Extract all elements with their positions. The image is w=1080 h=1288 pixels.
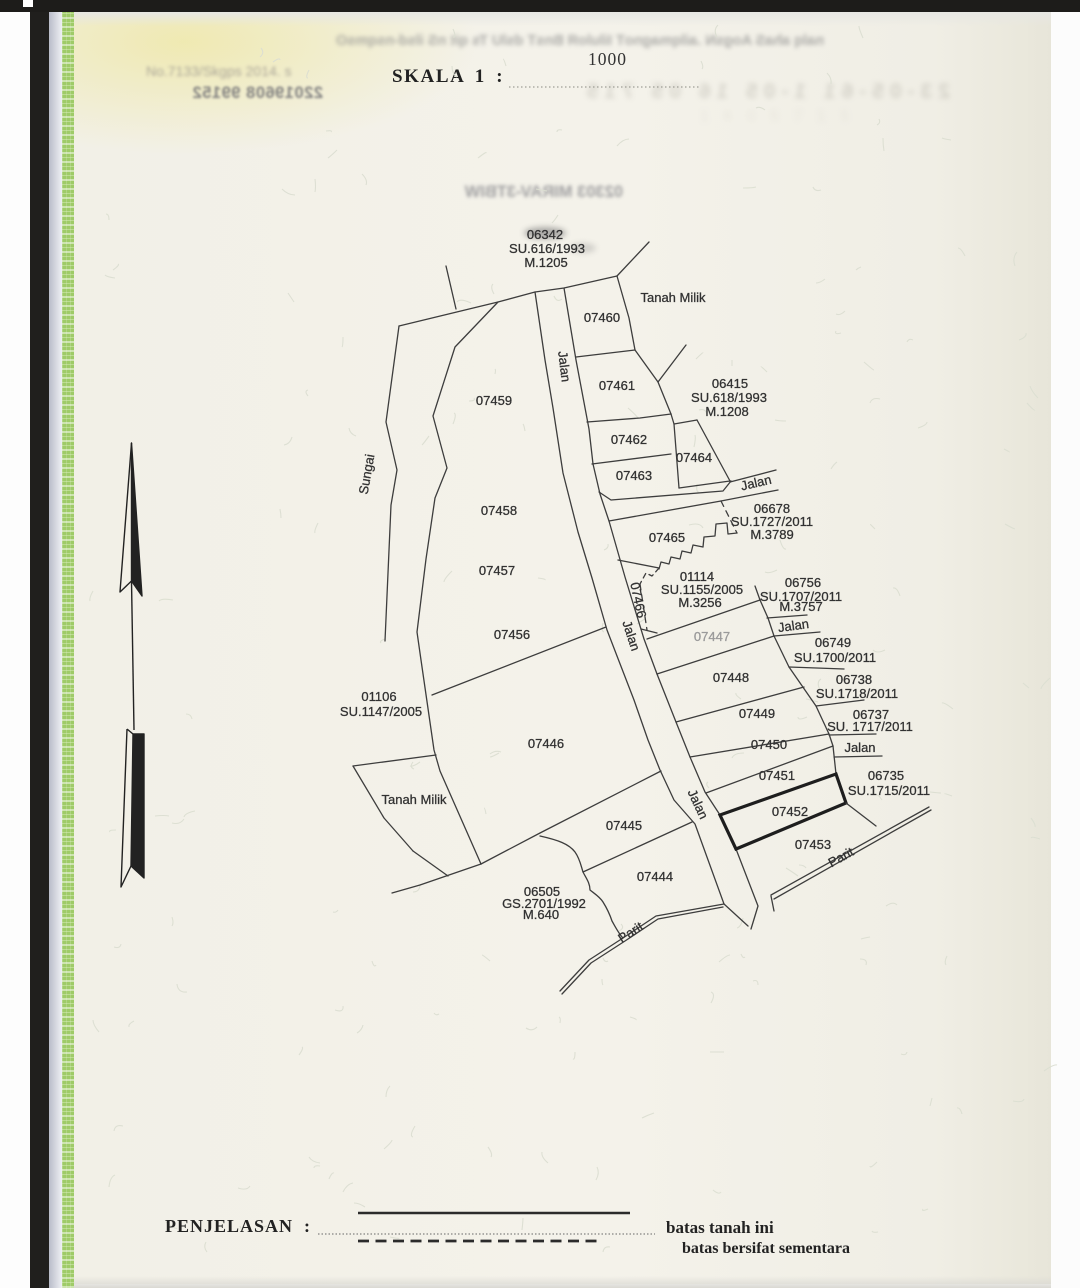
svg-text:07456: 07456 bbox=[494, 627, 530, 642]
svg-text:Tanah Milik: Tanah Milik bbox=[381, 792, 447, 807]
svg-text:Sungai: Sungai bbox=[356, 453, 378, 496]
svg-text:07452: 07452 bbox=[772, 804, 808, 819]
svg-text:SU.616/1993: SU.616/1993 bbox=[509, 241, 585, 256]
svg-text:M.640: M.640 bbox=[523, 907, 559, 922]
svg-text:06342: 06342 bbox=[527, 227, 563, 242]
svg-text:07463: 07463 bbox=[616, 468, 652, 483]
svg-text:07448: 07448 bbox=[713, 670, 749, 685]
svg-text:Tanah Milik: Tanah Milik bbox=[640, 290, 706, 305]
svg-text:07458: 07458 bbox=[481, 503, 517, 518]
svg-text:M.3789: M.3789 bbox=[750, 527, 793, 542]
svg-text:07449: 07449 bbox=[739, 706, 775, 721]
svg-text:SU.1718/2011: SU.1718/2011 bbox=[816, 686, 898, 701]
svg-text:07466: 07466 bbox=[627, 581, 649, 619]
svg-text:07451: 07451 bbox=[759, 768, 795, 783]
svg-text:07464: 07464 bbox=[676, 450, 712, 465]
svg-text:06735: 06735 bbox=[868, 768, 904, 783]
svg-text:07460: 07460 bbox=[584, 310, 620, 325]
svg-text:M.1205: M.1205 bbox=[524, 255, 567, 270]
svg-text:07453: 07453 bbox=[795, 837, 831, 852]
svg-text:07450: 07450 bbox=[751, 737, 787, 752]
svg-text:07462: 07462 bbox=[611, 432, 647, 447]
svg-text:07457: 07457 bbox=[479, 563, 515, 578]
svg-text:06749: 06749 bbox=[815, 635, 851, 650]
svg-text:SU.1147/2005: SU.1147/2005 bbox=[340, 704, 422, 719]
svg-text:M.3256: M.3256 bbox=[678, 595, 721, 610]
svg-text:07461: 07461 bbox=[599, 378, 635, 393]
svg-text:07446: 07446 bbox=[528, 736, 564, 751]
svg-text:Jalan: Jalan bbox=[844, 740, 875, 755]
svg-text:07465: 07465 bbox=[649, 530, 685, 545]
svg-text:Jalan: Jalan bbox=[777, 616, 810, 635]
svg-text:M.3757: M.3757 bbox=[779, 599, 822, 614]
svg-text:SU.1700/2011: SU.1700/2011 bbox=[794, 650, 876, 665]
svg-text:Jalan: Jalan bbox=[739, 472, 773, 494]
svg-text:M.1208: M.1208 bbox=[705, 404, 748, 419]
svg-text:07444: 07444 bbox=[637, 869, 673, 884]
svg-text:Jalan: Jalan bbox=[555, 350, 574, 383]
svg-text:07459: 07459 bbox=[476, 393, 512, 408]
svg-text:06738: 06738 bbox=[836, 672, 872, 687]
svg-text:07445: 07445 bbox=[606, 818, 642, 833]
svg-text:Parit: Parit bbox=[615, 918, 646, 945]
svg-text:SU.618/1993: SU.618/1993 bbox=[691, 390, 767, 405]
svg-text:06756: 06756 bbox=[785, 575, 821, 590]
svg-text:06415: 06415 bbox=[712, 376, 748, 391]
svg-text:SU. 1717/2011: SU. 1717/2011 bbox=[827, 719, 913, 734]
svg-text:07447: 07447 bbox=[694, 629, 730, 644]
svg-text:SU.1715/2011: SU.1715/2011 bbox=[848, 783, 930, 798]
svg-text:01106: 01106 bbox=[361, 689, 396, 704]
